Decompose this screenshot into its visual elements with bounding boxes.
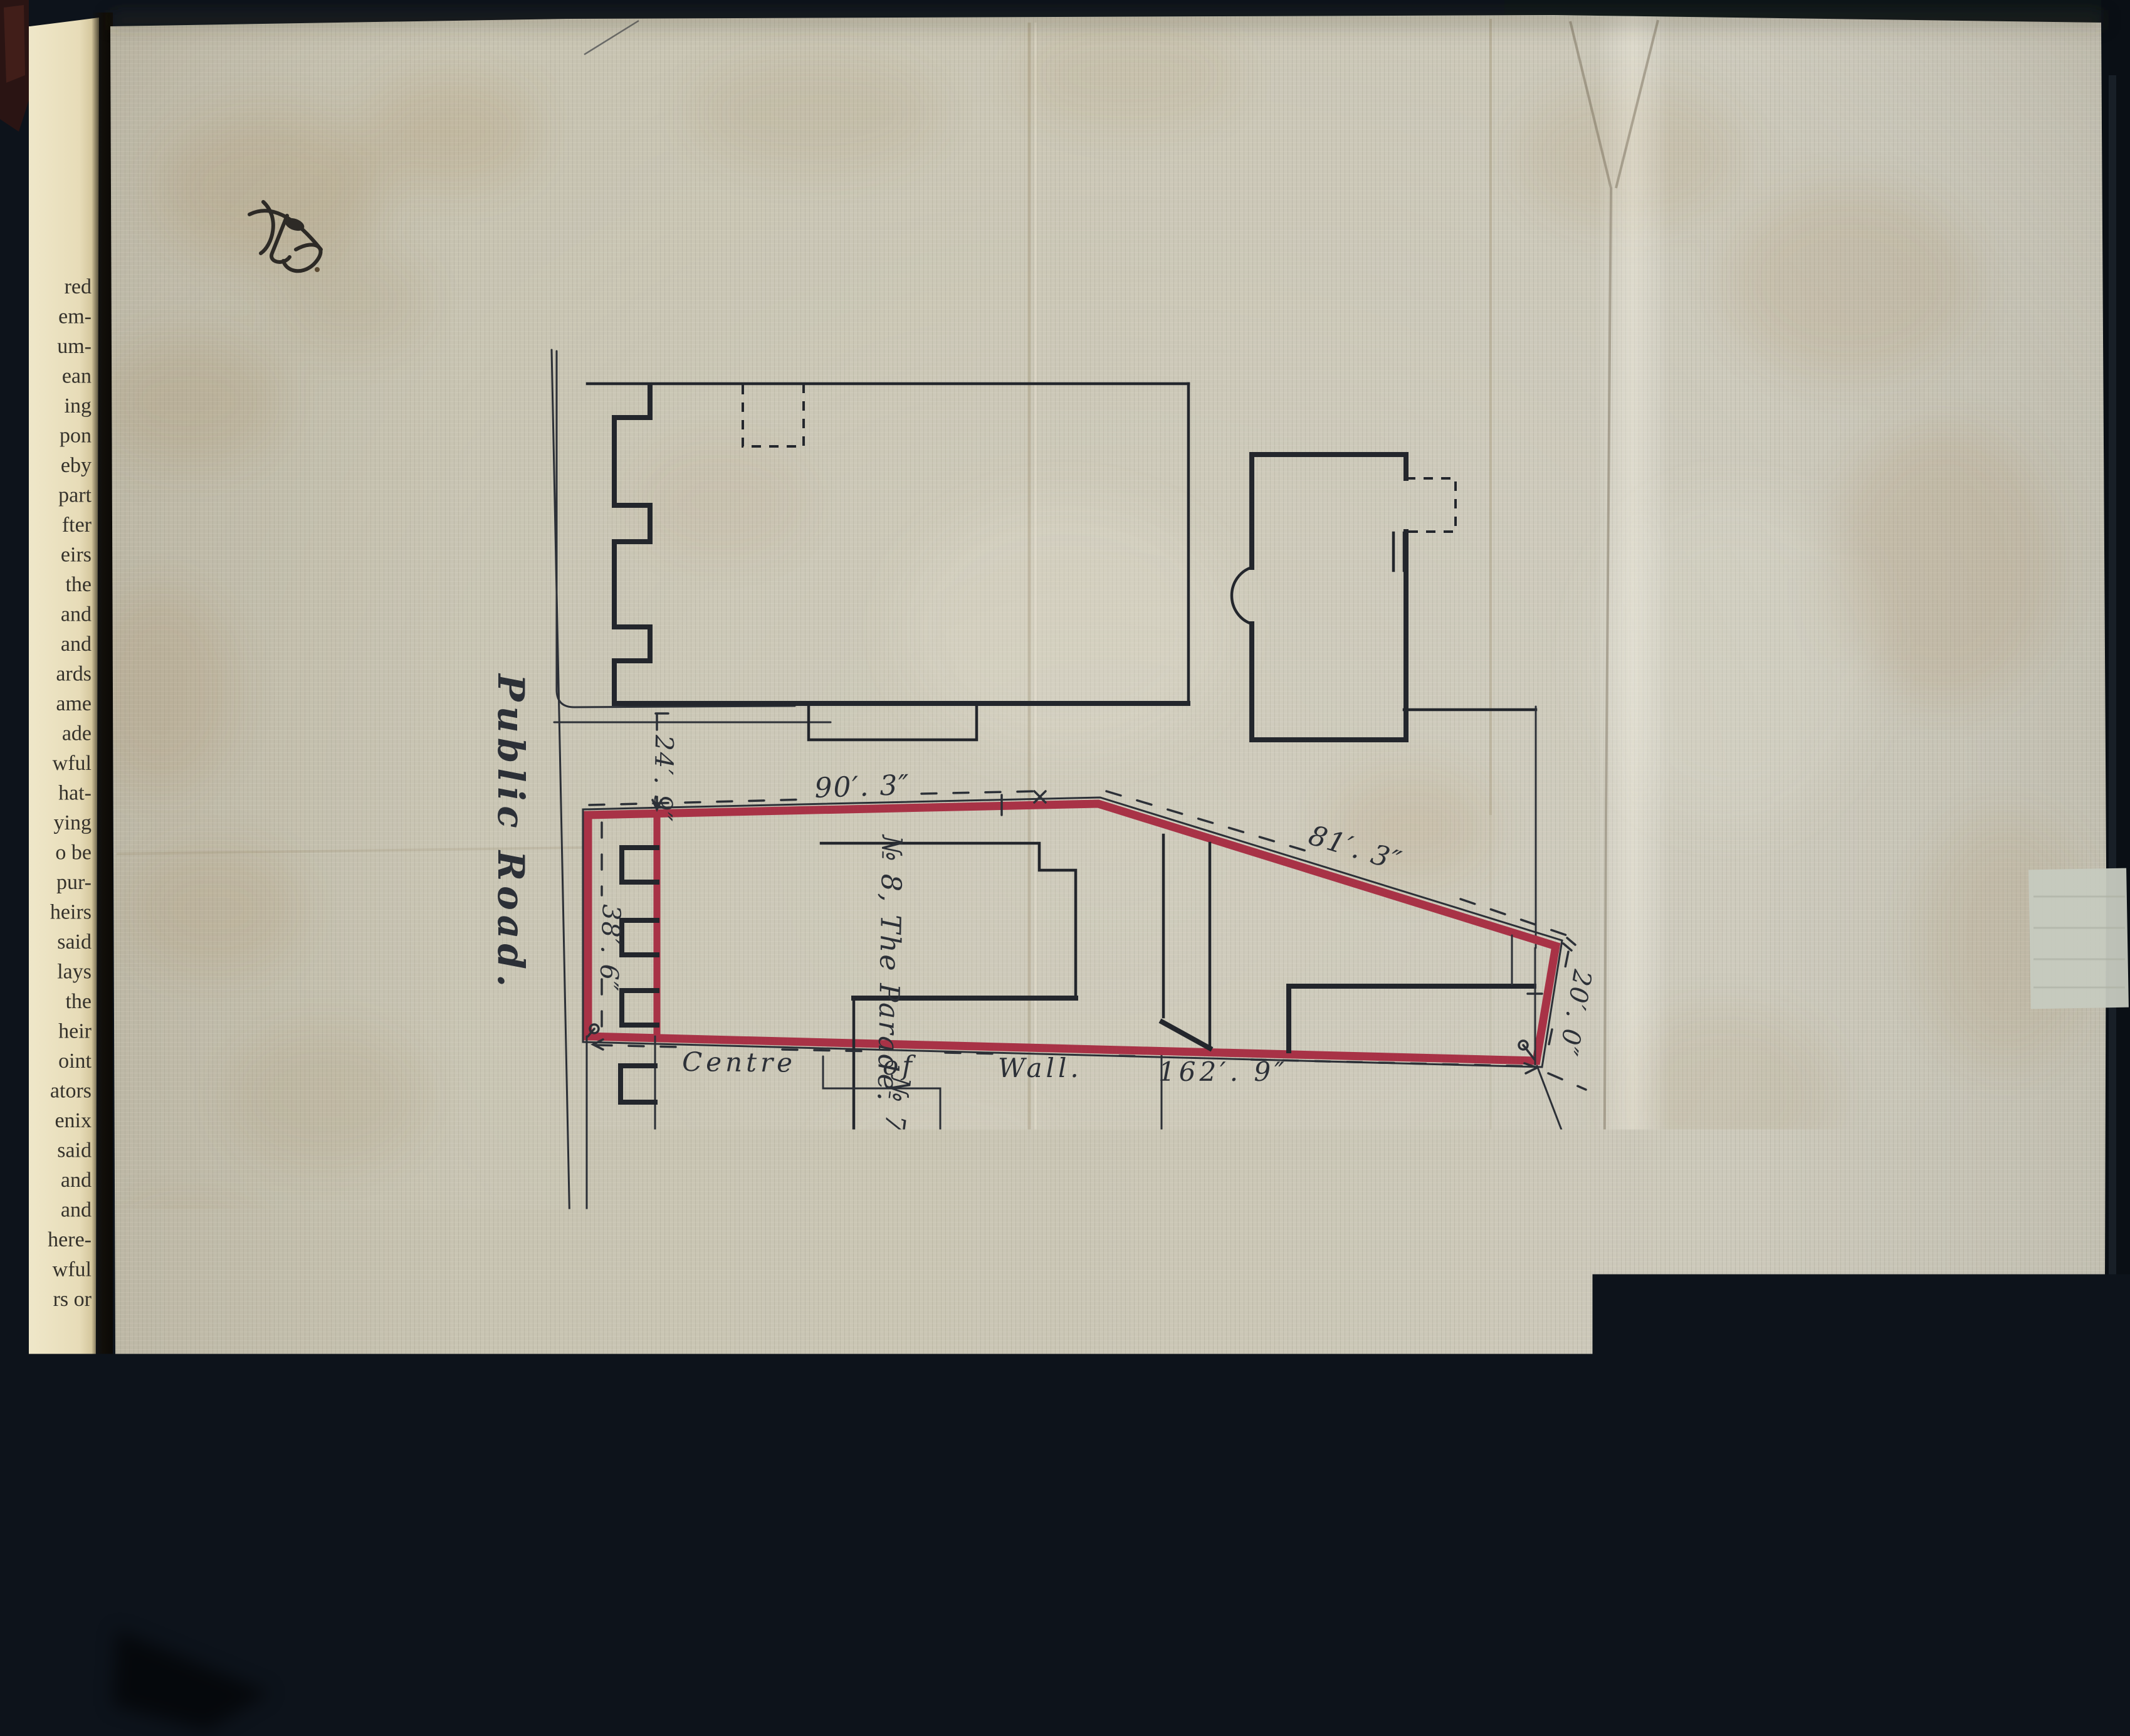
book-text-fragment: red [65,275,92,298]
book-spine-leather [4,5,25,83]
archival-site-plan: redem-um-eaningponebypartftereirstheanda… [0,0,2130,1736]
book-text-fragment: oint [58,1049,92,1073]
dim-left-frontage-value: 38′. 6″ [594,904,626,992]
book-text-fragment: lays [57,960,92,984]
centre-wall-word3: Wall. [998,1053,1083,1083]
book-text-fragment: em- [58,305,92,329]
book-text-fragment: and [61,603,92,626]
scanned-plan-page: redem-um-eaningponebypartftereirstheanda… [0,0,2130,1736]
book-text-fragment: the [65,573,92,596]
book-text-fragment: eirs [61,544,92,567]
book-text-fragment: rs or [53,1288,92,1311]
book-text-fragment: ean [62,365,92,388]
book-text-fragment: said [57,1139,92,1162]
book-text-fragment: wful [53,752,92,775]
sheet-folds [100,6,2119,1736]
book-text-fragment: um- [57,335,92,358]
book-text-fragment: heirs [50,901,92,924]
centre-wall-word2: of [883,1050,916,1081]
book-text-fragment: said [57,930,92,954]
book-text-fragment: heir [58,1020,92,1043]
book-text-fragment: ators [50,1080,92,1103]
book-text-fragment: o be [55,841,92,865]
bookmark-sliver [98,1591,107,1630]
book-text-fragment: and [61,1199,92,1222]
dim-road-width-value: 24′. 9″ [648,734,678,823]
centre-wall-value: 162′. 9″ [1158,1056,1288,1087]
book-text-fragment: pon [60,424,92,448]
public-road-label: Public Road. [490,673,532,992]
book-text-fragment: enix [55,1109,92,1132]
book-text-fragment: ying [54,811,92,834]
book-text-fragment: hat- [58,782,92,805]
book-text-fragment: fter [62,513,92,537]
book-text-fragment: ing [65,394,92,418]
book-text-fragment: wful [53,1258,92,1281]
book-text-fragment: part [58,484,92,507]
book-gutter-shadow [92,13,113,1730]
book-text-fragment: ade [62,722,92,745]
repair-patch [2028,868,2129,1009]
book-text-fragment: the [65,990,92,1013]
book-text-fragment: pur- [56,871,92,894]
centre-wall-word1: Centre [682,1046,796,1078]
book-text-fragment: eby [61,454,92,477]
book-text-fragment: ards [56,663,92,686]
book-text-fragment: ame [56,692,92,715]
book-fore-edge [2109,75,2116,1580]
book-text-fragment: here- [48,1228,92,1251]
book-text-fragment: and [61,633,92,656]
dim-top-value: 90′. 3″ [814,769,911,804]
book-text-fragment: and [61,1169,92,1192]
